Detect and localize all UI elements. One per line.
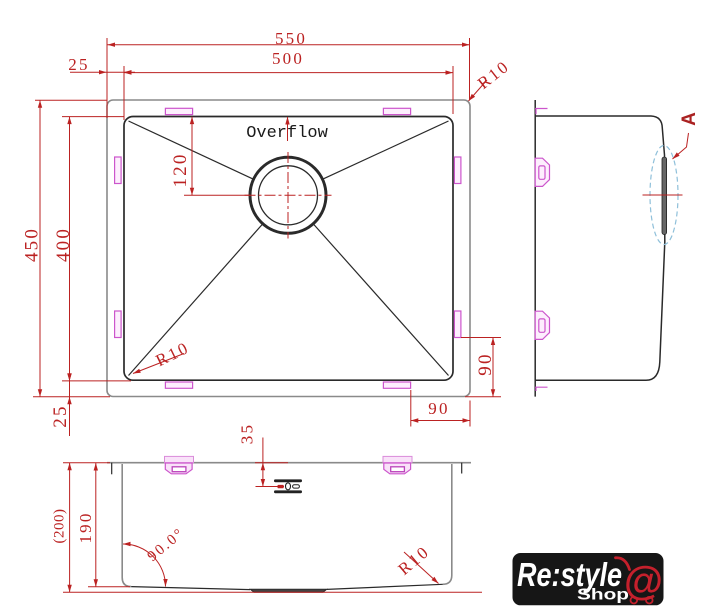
svg-text:25: 25 [68,55,89,74]
svg-text:550: 550 [275,29,307,48]
svg-text:90: 90 [475,352,496,375]
svg-text:(200): (200) [52,509,68,544]
svg-text:@: @ [624,559,663,603]
svg-text:500: 500 [272,49,304,68]
svg-text:190: 190 [76,511,95,543]
svg-text:400: 400 [53,227,74,262]
svg-text:450: 450 [22,227,43,262]
svg-text:120: 120 [170,152,191,187]
svg-text:A: A [679,112,700,126]
svg-text:25: 25 [50,404,71,427]
svg-text:90: 90 [428,399,449,418]
svg-text:35: 35 [238,423,257,444]
svg-text:Shop: Shop [577,587,629,604]
